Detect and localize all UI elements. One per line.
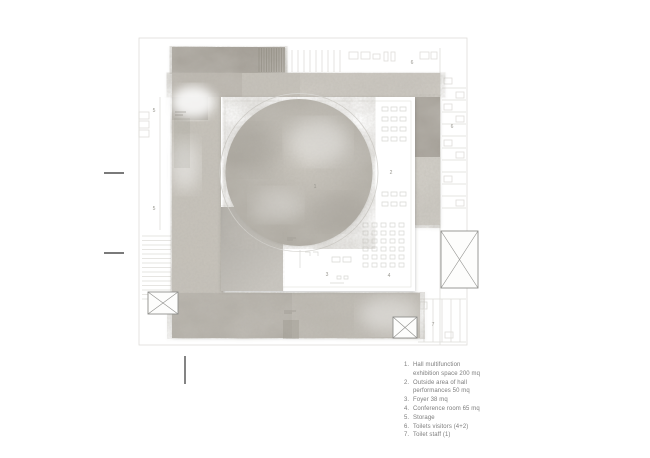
legend-number: 1. [404,361,413,370]
legend-number: 3. [404,396,413,405]
legend-item-outside-area: 2. Outside area of hall performances 50 … [404,379,496,397]
legend-item-conference: 4. Conference room 65 mq [404,405,496,414]
toilet-strip-top-partitions [285,48,340,73]
room-label-toilet-staff: 7 [432,322,435,328]
legend-item-foyer: 3. Foyer 38 mq [404,396,496,405]
room-label-conference: 4 [388,273,391,279]
room-label-outside-area: 2 [390,170,393,176]
legend-text: Storage [413,414,496,423]
room-label-storage-lower: 5 [153,206,156,212]
staff-toilet-partitions [418,299,466,342]
hall-circle [226,99,373,246]
floor-plan-drawing: 1 2 3 4 5 5 6 6 7 [0,0,650,458]
legend-item-hall: 1. Hall multifunction exhibition space 2… [404,361,496,379]
toilet-strip-right-partitions [442,88,466,208]
legend-text: Toilet staff (1) [413,431,496,440]
legend-text: Conference room 65 mq [413,405,496,414]
shaft-box-bottom-left [148,292,178,314]
concrete-top-band [172,73,440,97]
concrete-right-band [415,97,440,225]
legend-item-toilets-visitors: 6. Toilets visitors (4+2) [404,423,496,432]
legend-text: Outside area of hall performances 50 mq [413,379,496,397]
concrete-top-left-block [172,47,285,73]
legend-number: 7. [404,431,413,440]
legend-text: Hall multifunction exhibition space 200 … [413,361,496,379]
concrete-left-band [171,86,223,293]
room-label-toilets-top: 6 [411,60,414,66]
legend-number: 2. [404,379,413,388]
room-label-storage-upper: 5 [153,108,156,114]
room-label-foyer: 3 [326,272,329,278]
legend-item-toilet-staff: 7. Toilet staff (1) [404,431,496,440]
shaft-box-right [441,231,478,288]
room-label-toilets-right: 6 [451,124,454,130]
legend-number: 6. [404,423,413,432]
room-label-hall: 1 [314,184,317,190]
stair-ladder-lines [142,236,171,299]
legend-text: Foyer 38 mq [413,396,496,405]
legend-number: 5. [404,414,413,423]
legend-number: 4. [404,405,413,414]
plan-legend: 1. Hall multifunction exhibition space 2… [404,361,496,440]
shaft-box-bottom-middle [393,317,417,338]
legend-text: Toilets visitors (4+2) [413,423,496,432]
architectural-plan-page: 1 2 3 4 5 5 6 6 7 1. Hall multifunction … [0,0,650,458]
legend-item-storage: 5. Storage [404,414,496,423]
